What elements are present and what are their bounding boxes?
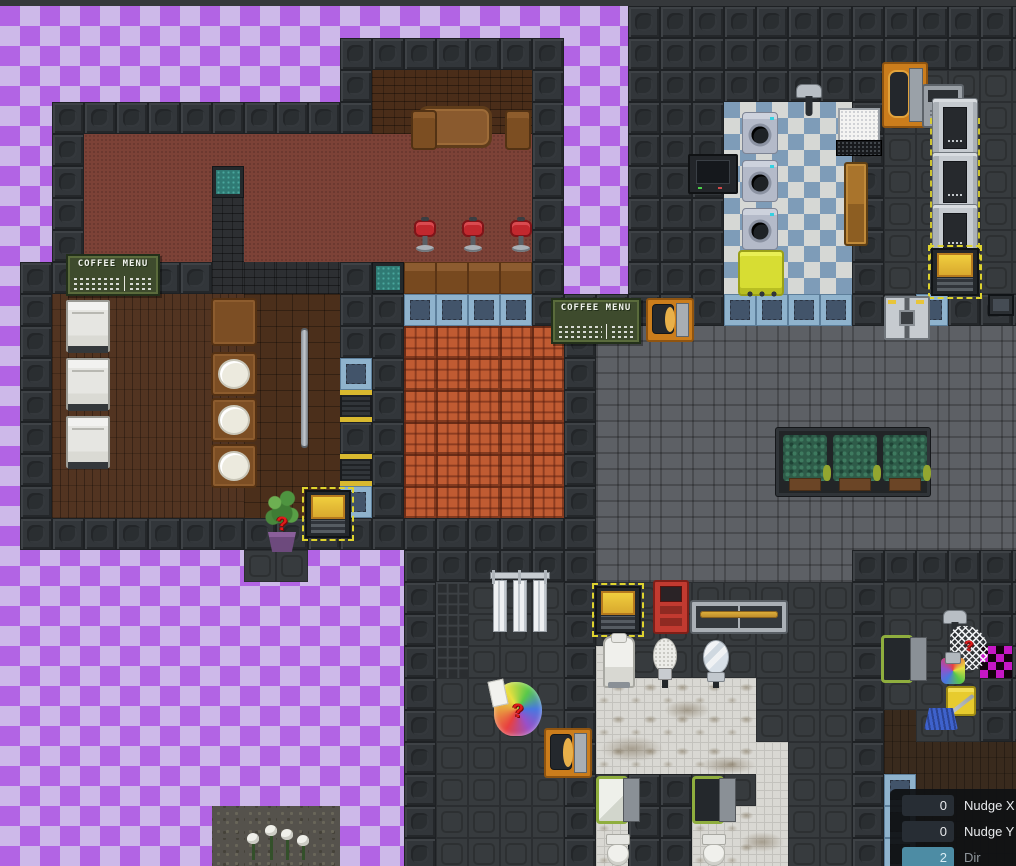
fridge[interactable] xyxy=(66,416,110,468)
yellow-vending-machine[interactable] xyxy=(305,490,351,538)
mirror[interactable] xyxy=(703,640,729,688)
toilet-stall-door[interactable] xyxy=(596,776,640,824)
shower-stall[interactable] xyxy=(490,566,550,636)
nudge-y-label: Nudge Y xyxy=(964,824,1014,839)
wooden-chair[interactable] xyxy=(505,110,531,150)
janitor-door[interactable] xyxy=(881,635,927,683)
toilet-stall-door[interactable] xyxy=(692,776,736,824)
map-objects-layer: COFFEE MENUCOFFEE MENU??? xyxy=(0,0,1016,866)
bar-stool[interactable] xyxy=(462,216,484,252)
dir-input[interactable]: 2 xyxy=(902,847,954,866)
red-vending-machine[interactable] xyxy=(653,580,689,634)
bar-stool[interactable] xyxy=(510,216,532,252)
locker[interactable] xyxy=(932,152,978,208)
floor-stain xyxy=(600,736,664,762)
dir-row: 2 Dir xyxy=(902,847,1016,866)
tile-inspector-panel: 0 Nudge X 0 Nudge Y 2 Dir xyxy=(890,789,1016,866)
floor-stain xyxy=(740,832,784,852)
coffee-menu-title: COFFEE MENU xyxy=(553,303,639,313)
locker[interactable] xyxy=(932,98,978,154)
nudge-y-input[interactable]: 0 xyxy=(902,821,954,842)
nudge-x-input[interactable]: 0 xyxy=(902,795,954,816)
washing-machine[interactable] xyxy=(742,208,778,250)
mop-and-bucket[interactable] xyxy=(924,682,980,732)
wooden-bench[interactable] xyxy=(844,162,868,246)
shower-head[interactable] xyxy=(796,80,822,118)
map-editor-viewport: COFFEE MENUCOFFEE MENU??? 0 Nudge X 0 Nu… xyxy=(0,0,1016,866)
nudge-x-row: 0 Nudge X xyxy=(902,795,1016,816)
railing-pole[interactable] xyxy=(301,330,308,446)
computer-terminal[interactable] xyxy=(836,108,882,160)
dir-label: Dir xyxy=(964,850,981,865)
wall-television[interactable] xyxy=(688,154,738,194)
yellow-vending-machine[interactable] xyxy=(595,586,641,634)
table-with-plate[interactable] xyxy=(211,352,257,396)
washing-machine[interactable] xyxy=(742,112,778,154)
laundry-cart[interactable] xyxy=(738,250,784,296)
toilet[interactable] xyxy=(604,834,632,866)
sink-counter[interactable] xyxy=(690,600,788,634)
nudge-x-label: Nudge X xyxy=(964,798,1015,813)
nudge-y-row: 0 Nudge Y xyxy=(902,821,1016,842)
floor-stain xyxy=(700,756,756,774)
coffee-menu-sign[interactable]: COFFEE MENU xyxy=(66,254,160,296)
random-plant-spawner[interactable]: ? xyxy=(262,490,302,554)
question-mark-icon: ? xyxy=(276,514,288,536)
wall-display[interactable] xyxy=(988,294,1014,316)
table-with-plate[interactable] xyxy=(211,398,257,442)
urinal[interactable] xyxy=(653,638,677,688)
hedge-planter[interactable] xyxy=(776,428,930,496)
washing-machine[interactable] xyxy=(742,160,778,202)
fridge[interactable] xyxy=(66,358,110,410)
question-mark-icon: ? xyxy=(964,637,973,654)
white-flowers[interactable] xyxy=(242,822,314,866)
water-cooler[interactable] xyxy=(603,636,635,688)
random-item-spawner[interactable] xyxy=(941,658,965,684)
question-mark-icon: ? xyxy=(512,701,524,723)
wooden-chair[interactable] xyxy=(411,110,437,150)
coffee-menu-title: COFFEE MENU xyxy=(68,259,158,269)
airlock-door[interactable] xyxy=(646,298,694,342)
bar-table[interactable] xyxy=(211,298,257,346)
toilet[interactable] xyxy=(700,834,728,866)
floor-stain xyxy=(664,700,710,720)
fridge[interactable] xyxy=(66,300,110,352)
bar-stool[interactable] xyxy=(414,216,436,252)
coffee-menu-sign[interactable]: COFFEE MENU xyxy=(551,298,641,344)
double-door[interactable] xyxy=(884,296,930,340)
random-item-spawner[interactable]: ? xyxy=(494,682,542,736)
yellow-vending-machine[interactable] xyxy=(931,248,979,296)
airlock-door[interactable] xyxy=(544,728,592,778)
table-with-plate[interactable] xyxy=(211,444,257,488)
